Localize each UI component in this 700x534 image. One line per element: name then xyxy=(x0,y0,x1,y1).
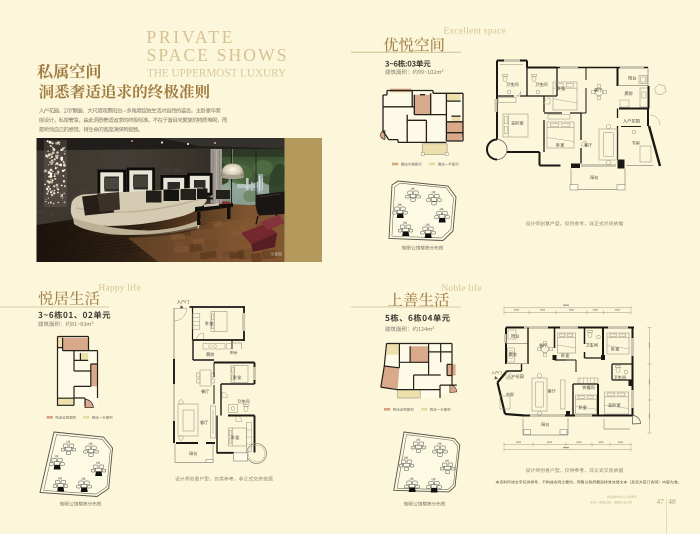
svg-text:PRIVATE: PRIVATE xyxy=(147,27,236,47)
svg-text:Happy life: Happy life xyxy=(99,283,142,294)
svg-text:THE UPPERMOST LUXURY: THE UPPERMOST LUXURY xyxy=(147,68,286,80)
svg-text:SPACE SHOWS: SPACE SHOWS xyxy=(147,45,289,65)
svg-text:|: | xyxy=(666,499,667,506)
svg-text:48: 48 xyxy=(668,497,676,506)
svg-text:Excellent space: Excellent space xyxy=(444,27,507,37)
svg-text:47: 47 xyxy=(657,497,665,506)
svg-text:Noble life: Noble life xyxy=(442,283,482,294)
